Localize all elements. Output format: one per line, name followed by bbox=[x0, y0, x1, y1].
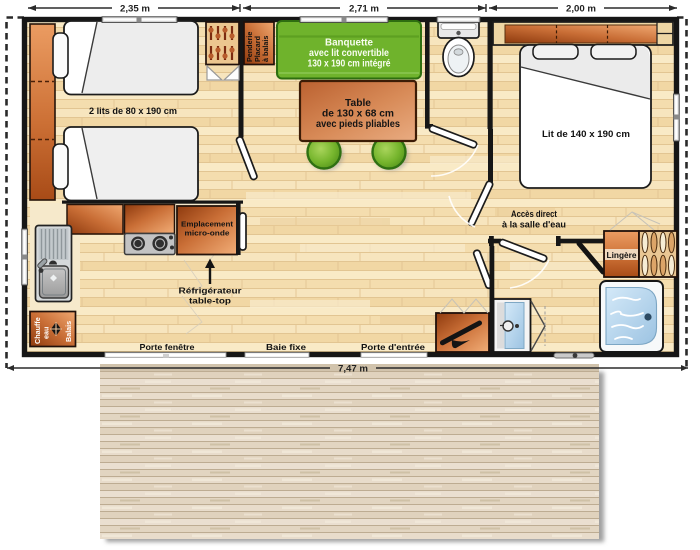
svg-text:Porte fenêtre: Porte fenêtre bbox=[140, 342, 195, 352]
svg-text:avec pieds pliables: avec pieds pliables bbox=[316, 119, 400, 130]
svg-text:Table: Table bbox=[345, 98, 371, 109]
svg-text:Lingère: Lingère bbox=[607, 250, 637, 260]
svg-text:Baie fixe: Baie fixe bbox=[266, 342, 306, 352]
svg-text:micro-onde: micro-onde bbox=[185, 229, 230, 238]
svg-text:table-top: table-top bbox=[189, 296, 231, 306]
svg-text:à balais: à balais bbox=[261, 36, 270, 62]
svg-text:Lit de 140 x 190 cm: Lit de 140 x 190 cm bbox=[542, 129, 630, 140]
svg-text:Accès direct: Accès direct bbox=[511, 209, 557, 219]
svg-text:2 lits de 80 x 190 cm: 2 lits de 80 x 190 cm bbox=[89, 106, 177, 116]
svg-text:Emplacement: Emplacement bbox=[181, 220, 233, 229]
svg-text:2,00 m: 2,00 m bbox=[566, 4, 596, 14]
svg-text:Réfrigérateur: Réfrigérateur bbox=[179, 286, 243, 296]
svg-text:Porte d'entrée: Porte d'entrée bbox=[361, 342, 425, 352]
svg-text:Banquette: Banquette bbox=[325, 38, 374, 49]
svg-text:Balais: Balais bbox=[64, 321, 73, 342]
svg-text:7,47 m: 7,47 m bbox=[338, 364, 368, 374]
svg-text:à la salle d'eau: à la salle d'eau bbox=[502, 220, 566, 230]
svg-text:de 130 x 68 cm: de 130 x 68 cm bbox=[322, 109, 394, 120]
svg-text:avec lit convertible: avec lit convertible bbox=[309, 48, 389, 59]
svg-text:eau: eau bbox=[42, 327, 51, 339]
svg-text:2,35 m: 2,35 m bbox=[120, 4, 150, 14]
svg-text:2,71 m: 2,71 m bbox=[349, 4, 379, 14]
svg-text:130 x 190 cm intégré: 130 x 190 cm intégré bbox=[308, 59, 391, 70]
